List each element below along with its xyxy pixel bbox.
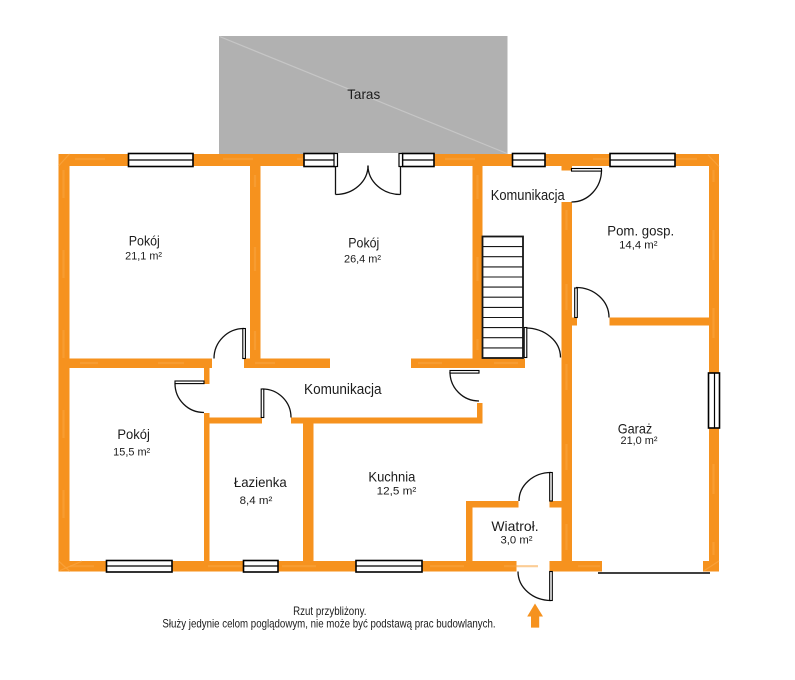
svg-text:Pokój: Pokój <box>117 426 150 442</box>
svg-text:15,5 m²: 15,5 m² <box>113 447 150 459</box>
svg-text:Komunikacja: Komunikacja <box>491 187 565 204</box>
svg-text:Taras: Taras <box>347 86 380 102</box>
svg-text:12,5 m²: 12,5 m² <box>377 486 417 498</box>
svg-text:26,4 m²: 26,4 m² <box>344 253 381 265</box>
svg-text:Pokój: Pokój <box>129 233 160 249</box>
svg-text:Komunikacja: Komunikacja <box>304 381 382 398</box>
svg-text:14,4 m²: 14,4 m² <box>619 240 658 252</box>
svg-text:21,0 m²: 21,0 m² <box>621 435 658 447</box>
svg-text:Służy jedynie celom poglądowym: Służy jedynie celom poglądowym, nie może… <box>162 616 495 630</box>
svg-text:3,0 m²: 3,0 m² <box>501 534 533 546</box>
svg-text:Pokój: Pokój <box>348 235 379 251</box>
svg-text:Łazienka: Łazienka <box>234 474 287 490</box>
svg-text:Kuchnia: Kuchnia <box>368 469 415 485</box>
svg-text:Wiatroł.: Wiatroł. <box>491 518 538 534</box>
svg-text:Pom. gosp.: Pom. gosp. <box>607 223 674 239</box>
svg-text:21,1 m²: 21,1 m² <box>125 250 162 262</box>
svg-text:8,4 m²: 8,4 m² <box>240 495 273 507</box>
